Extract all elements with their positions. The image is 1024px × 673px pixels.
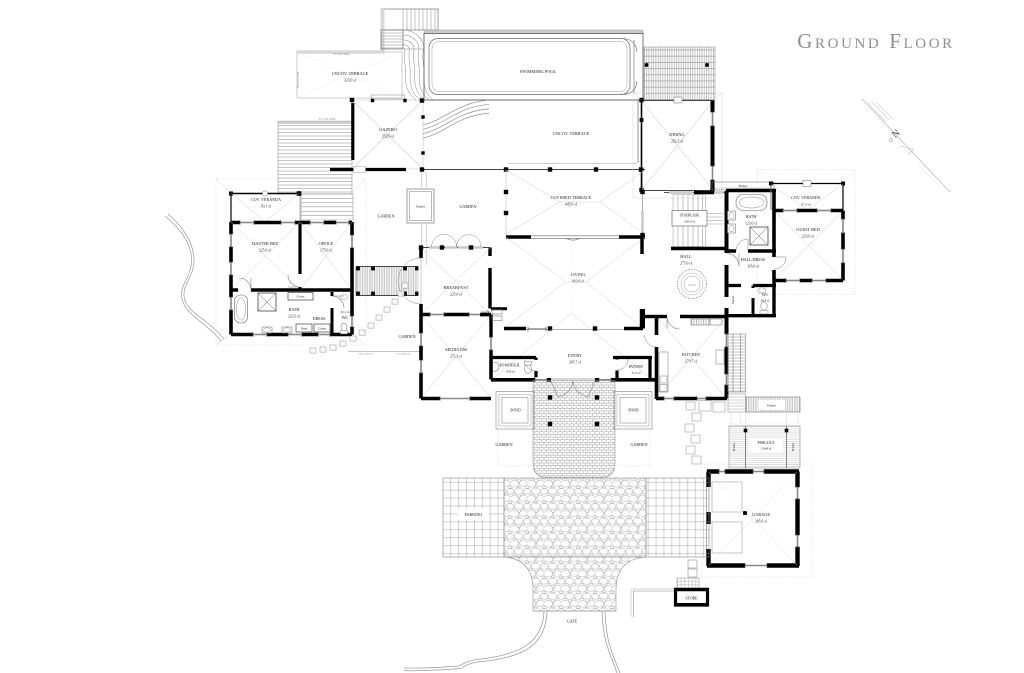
svg-text:323.0 sf: 323.0 sf (344, 78, 357, 82)
svg-text:123.6 sf: 123.6 sf (745, 221, 758, 225)
svg-text:Planter: Planter (732, 443, 736, 452)
svg-text:Planter: Planter (739, 184, 748, 188)
svg-text:STORE: STORE (686, 597, 699, 601)
svg-text:SWIMMIMG POOL: SWIMMIMG POOL (520, 69, 557, 74)
svg-text:Steel wall fence: Steel wall fence (359, 353, 374, 356)
svg-text:Planter: Planter (767, 404, 776, 408)
svg-text:OFFICE: OFFICE (319, 241, 334, 246)
svg-text:220.0 sf: 220.0 sf (684, 220, 696, 224)
svg-text:Closet: Closet (318, 327, 326, 331)
svg-text:GUEST BED: GUEST BED (796, 227, 819, 232)
svg-text:138.8 sf: 138.8 sf (761, 447, 773, 451)
svg-text:BATH: BATH (289, 307, 300, 312)
svg-text:223.3 sf: 223.3 sf (288, 314, 301, 318)
svg-text:19.8 sf: 19.8 sf (505, 370, 515, 374)
svg-text:Planter: Planter (416, 205, 426, 209)
svg-text:305.7 sf: 305.7 sf (569, 360, 582, 364)
svg-text:252.0 sf: 252.0 sf (382, 134, 395, 138)
svg-text:STAIRCASE: STAIRCASE (680, 214, 701, 218)
svg-text:87.3 sf: 87.3 sf (801, 202, 811, 206)
svg-text:32.1 sf: 32.1 sf (340, 310, 350, 314)
svg-text:Closet: Closet (731, 296, 735, 304)
svg-text:Closet: Closet (296, 295, 304, 299)
svg-text:BREAKFAST: BREAKFAST (444, 285, 469, 290)
svg-text:Steel wall fence: Steel wall fence (397, 353, 412, 356)
svg-text:445.0 sf: 445.0 sf (565, 202, 578, 206)
svg-text:Desk: Desk (301, 327, 308, 331)
svg-text:Steel wall railing: Steel wall railing (297, 71, 300, 88)
svg-text:GARDEN: GARDEN (398, 334, 415, 339)
svg-text:PANTRY: PANTRY (629, 365, 644, 369)
svg-text:Steel wall railing: Steel wall railing (333, 53, 350, 56)
svg-text:POND: POND (628, 409, 639, 413)
svg-text:GARDEN: GARDEN (459, 204, 476, 209)
svg-text:BATH: BATH (746, 214, 757, 219)
svg-text:HALL: HALL (680, 254, 692, 259)
svg-text:Fountain: Fountain (688, 285, 697, 287)
svg-text:UNCOV. TERRACE: UNCOV. TERRACE (553, 131, 590, 136)
svg-text:UNCOV. TERRACE: UNCOV. TERRACE (332, 71, 369, 76)
svg-text:118.0 sf: 118.0 sf (747, 264, 760, 268)
svg-text:GARDEN: GARDEN (377, 214, 394, 219)
svg-text:Ground Floor: Ground Floor (797, 29, 954, 53)
svg-text:PERGOLA: PERGOLA (757, 441, 774, 445)
svg-text:COV. VERANDA: COV. VERANDA (251, 197, 281, 202)
svg-text:225.0 sf: 225.0 sf (450, 292, 463, 296)
svg-text:223.0 sf: 223.0 sf (802, 234, 815, 238)
svg-text:GARDEN: GARDEN (630, 442, 647, 447)
svg-text:Planter: Planter (791, 443, 795, 452)
svg-text:PARKING: PARKING (465, 512, 483, 517)
svg-text:LIVING: LIVING (571, 272, 586, 277)
svg-text:DINING: DINING (669, 132, 684, 137)
svg-text:WC: WC (762, 293, 769, 297)
svg-text:Steel wall railing: Steel wall railing (319, 118, 336, 121)
svg-text:DRESS: DRESS (313, 316, 326, 321)
svg-text:KITCHEN: KITCHEN (682, 352, 700, 357)
svg-text:GARDEN: GARDEN (495, 442, 512, 447)
svg-text:MASTER BED: MASTER BED (251, 241, 278, 246)
svg-text:POWDER R.: POWDER R. (500, 364, 521, 368)
svg-text:662.0 sf: 662.0 sf (572, 279, 585, 283)
svg-text:ENTRY: ENTRY (568, 353, 582, 358)
svg-text:292.3 sf: 292.3 sf (671, 139, 684, 143)
svg-text:COV. VERANDA: COV. VERANDA (791, 195, 821, 200)
svg-text:POND: POND (510, 409, 521, 413)
svg-text:COVERED TERRACE: COVERED TERRACE (551, 195, 592, 200)
svg-text:275.0 sf: 275.0 sf (680, 261, 693, 265)
svg-text:HALL/DRESS: HALL/DRESS (741, 257, 765, 262)
svg-text:83.1 sf: 83.1 sf (261, 204, 272, 208)
svg-text:WC: WC (342, 315, 349, 320)
svg-text:37.3 sf: 37.3 sf (631, 371, 641, 375)
svg-text:GAZEBO: GAZEBO (379, 127, 396, 132)
svg-text:205.0 sf: 205.0 sf (755, 520, 767, 524)
svg-text:GATE: GATE (567, 619, 578, 624)
